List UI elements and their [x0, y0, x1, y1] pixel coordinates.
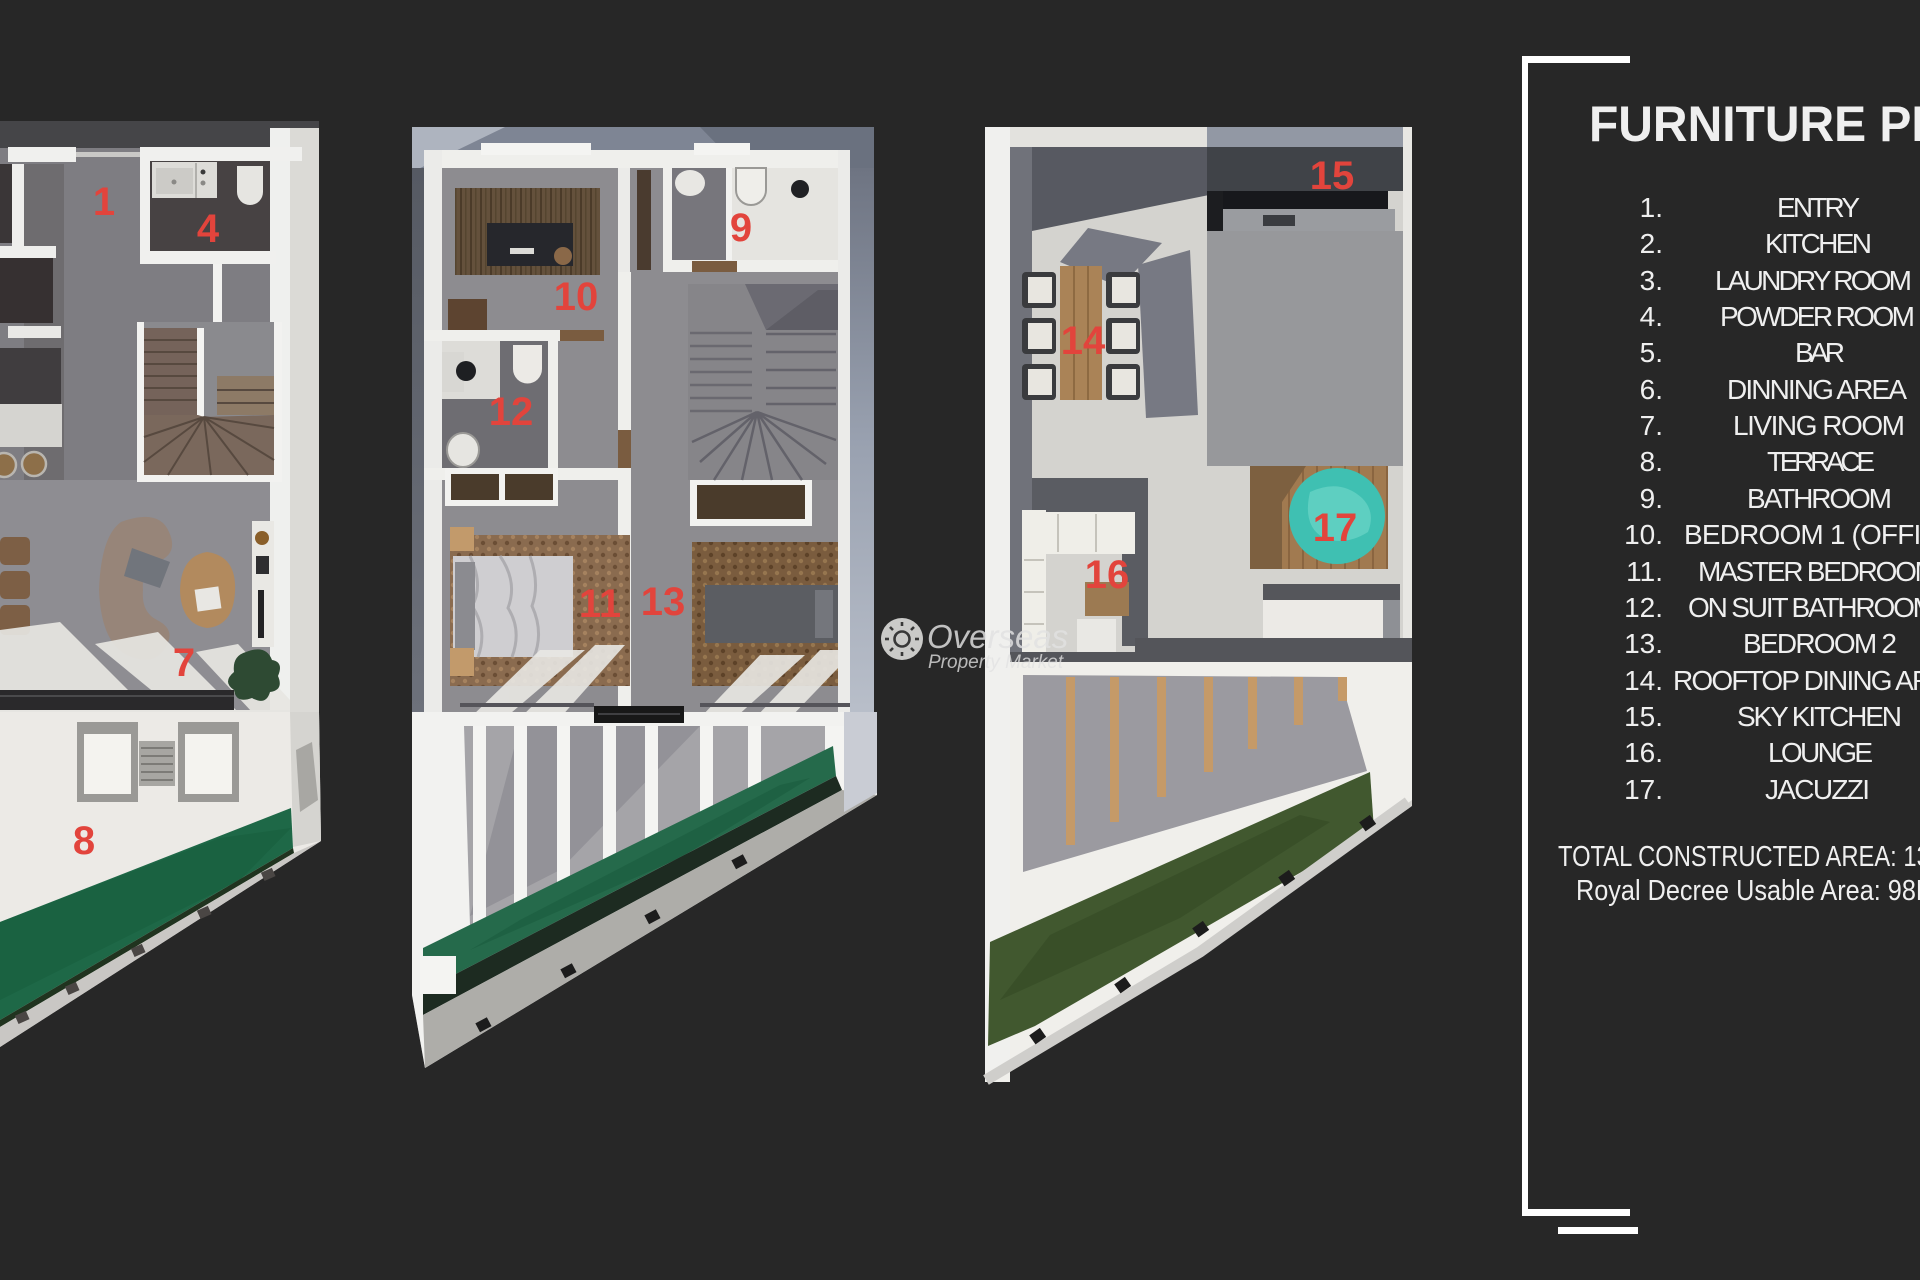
svg-text:14.: 14.: [1624, 665, 1663, 696]
svg-text:TOTAL CONSTRUCTED AREA: 135M2: TOTAL CONSTRUCTED AREA: 135M2: [1558, 841, 1920, 873]
svg-text:5.: 5.: [1640, 337, 1663, 368]
svg-text:17: 17: [1313, 506, 1358, 550]
svg-text:LAUNDRY ROOM: LAUNDRY ROOM: [1715, 265, 1912, 296]
svg-text:FURNITURE PLAN: FURNITURE PLAN: [1589, 96, 1920, 152]
svg-text:8: 8: [73, 819, 95, 863]
svg-text:8.: 8.: [1640, 446, 1663, 477]
svg-text:7.: 7.: [1640, 410, 1663, 441]
svg-text:LIVING ROOM: LIVING ROOM: [1733, 410, 1905, 441]
svg-text:4.: 4.: [1640, 301, 1663, 332]
svg-text:14: 14: [1061, 319, 1106, 363]
svg-text:BEDROOM 1 (OFFICE): BEDROOM 1 (OFFICE): [1684, 519, 1920, 550]
svg-text:TERRACE: TERRACE: [1767, 446, 1875, 477]
svg-text:ROOFTOP DINING AREA: ROOFTOP DINING AREA: [1673, 665, 1920, 696]
svg-text:Property Market: Property Market: [928, 652, 1064, 673]
svg-text:9.: 9.: [1640, 483, 1663, 514]
svg-text:Overseas: Overseas: [927, 618, 1068, 655]
svg-text:10.: 10.: [1624, 519, 1663, 550]
svg-text:6.: 6.: [1640, 374, 1663, 405]
svg-text:16: 16: [1085, 553, 1130, 597]
svg-text:SKY KITCHEN: SKY KITCHEN: [1737, 701, 1902, 732]
svg-text:MASTER BEDROOM: MASTER BEDROOM: [1698, 556, 1920, 587]
svg-text:4: 4: [197, 207, 220, 251]
svg-text:KITCHEN: KITCHEN: [1765, 228, 1872, 259]
svg-text:ENTRY: ENTRY: [1777, 192, 1860, 223]
svg-text:13: 13: [641, 580, 686, 624]
svg-text:2.: 2.: [1640, 228, 1663, 259]
svg-text:1.: 1.: [1640, 192, 1663, 223]
svg-text:10: 10: [554, 275, 599, 319]
svg-text:3.: 3.: [1640, 265, 1663, 296]
svg-text:JACUZZI: JACUZZI: [1765, 774, 1870, 805]
svg-text:13.: 13.: [1624, 628, 1663, 659]
svg-text:12: 12: [489, 390, 534, 434]
svg-text:15.: 15.: [1624, 701, 1663, 732]
svg-text:17.: 17.: [1624, 774, 1663, 805]
svg-text:11: 11: [579, 582, 621, 626]
svg-text:POWDER ROOM: POWDER ROOM: [1720, 301, 1915, 332]
svg-text:LOUNGE: LOUNGE: [1768, 737, 1873, 768]
svg-text:12.: 12.: [1624, 592, 1663, 623]
svg-text:11.: 11.: [1626, 556, 1663, 587]
svg-text:16.: 16.: [1624, 737, 1663, 768]
svg-text:15: 15: [1310, 154, 1355, 198]
svg-text:7: 7: [173, 641, 195, 685]
svg-text:9: 9: [730, 206, 752, 250]
svg-text:BAR: BAR: [1795, 337, 1845, 368]
svg-text:BATHROOM: BATHROOM: [1747, 483, 1892, 514]
svg-text:Royal Decree Usable Area: 98M2: Royal Decree Usable Area: 98M2: [1576, 875, 1920, 907]
svg-text:DINNING AREA: DINNING AREA: [1727, 374, 1907, 405]
svg-text:1: 1: [93, 180, 115, 224]
svg-text:ON SUIT BATHROOM: ON SUIT BATHROOM: [1688, 592, 1920, 623]
svg-text:BEDROOM 2: BEDROOM 2: [1743, 628, 1897, 659]
